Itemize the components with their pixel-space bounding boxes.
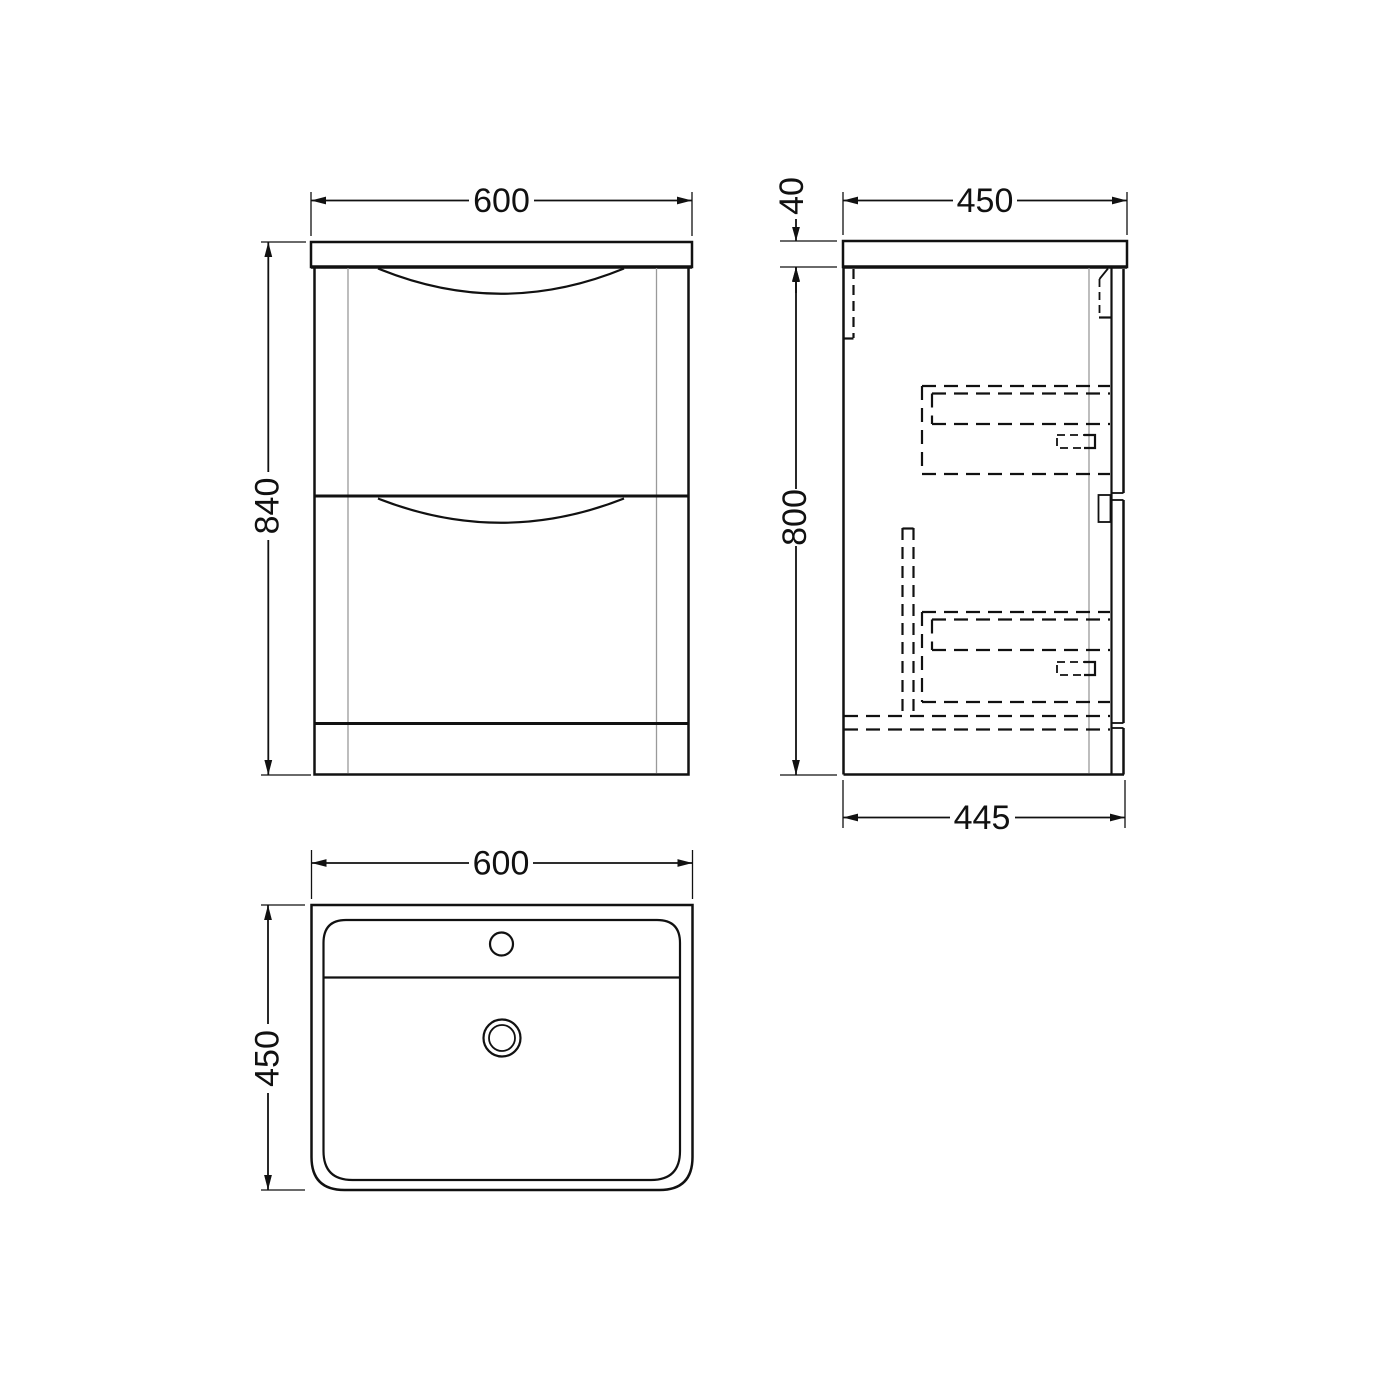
dim-front-height: 840: [249, 242, 312, 775]
dim-label-side-worktop-thickness: 40: [773, 177, 811, 215]
dim-side-cabinet-height: 800: [776, 267, 837, 775]
arrow-up-icon: [264, 905, 272, 920]
plan-tap-hole: [490, 933, 513, 956]
side-bottom-shelf-hidden: [844, 716, 1110, 730]
arrow-up-icon: [792, 267, 800, 282]
arrow-right-icon: [677, 197, 692, 205]
dim-front-width: 600: [311, 182, 692, 236]
arrow-right-icon: [1112, 197, 1127, 205]
front-view: 600 840: [249, 182, 693, 775]
dim-plan-width: 600: [312, 845, 693, 900]
vanity-unit-drawing: 600 840: [0, 0, 1389, 1389]
arrow-up-icon: [264, 242, 272, 257]
arrow-left-icon: [312, 859, 327, 867]
arrow-left-icon: [311, 197, 326, 205]
dim-plan-depth: 450: [249, 905, 306, 1190]
side-drawer-fronts: [1112, 269, 1124, 775]
dim-label-plan-depth: 450: [249, 1030, 287, 1087]
side-drawer-box-2-hidden: [922, 612, 1110, 702]
arrow-down-icon: [264, 1175, 272, 1190]
arrow-down-icon: [792, 227, 800, 241]
side-wall-batten-hidden: [844, 269, 854, 339]
arrow-left-icon: [843, 814, 858, 822]
side-top-bracket: [1099, 269, 1111, 318]
arrow-right-icon: [1110, 814, 1125, 822]
arrow-down-icon: [792, 760, 800, 775]
dim-label-front-height: 840: [249, 478, 287, 535]
plan-view: 600 450: [249, 845, 693, 1191]
arrow-right-icon: [678, 859, 693, 867]
front-worktop: [311, 242, 692, 267]
dim-label-side-worktop-depth: 450: [957, 182, 1014, 220]
front-cabinet-outline: [315, 267, 689, 775]
side-mid-bracket: [1099, 495, 1111, 522]
dim-side-base-depth: 445: [843, 780, 1125, 837]
technical-drawing-page: 600 840: [0, 0, 1389, 1389]
dim-label-side-base-depth: 445: [954, 799, 1011, 837]
side-waste-pipe-hidden: [903, 528, 914, 716]
plan-worktop-outline: [312, 905, 693, 1190]
dim-side-worktop-depth: 450: [843, 182, 1127, 235]
front-drawer2-handle-arc: [378, 499, 624, 523]
plan-basin-rim: [324, 920, 681, 1180]
front-drawer1-handle-arc: [378, 269, 624, 294]
dim-label-front-width: 600: [473, 182, 530, 220]
plan-waste-inner: [489, 1025, 515, 1051]
side-drawer-box-1-hidden: [922, 386, 1110, 474]
dim-label-plan-width: 600: [473, 845, 530, 883]
arrow-down-icon: [264, 760, 272, 775]
dim-side-worktop-thickness: 40: [773, 177, 837, 293]
side-view: 450 40 800 445: [773, 177, 1127, 837]
dim-label-side-cabinet-height: 800: [776, 489, 814, 546]
side-worktop: [843, 241, 1127, 267]
arrow-left-icon: [843, 197, 858, 205]
